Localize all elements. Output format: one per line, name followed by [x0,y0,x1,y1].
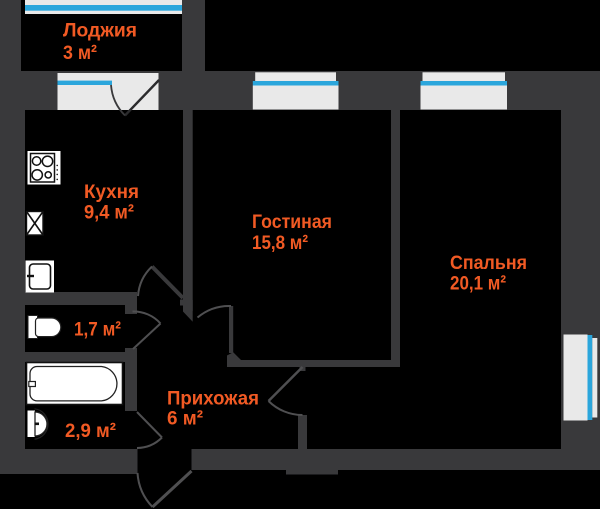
svg-text:9,4 м²: 9,4 м² [84,202,134,224]
svg-text:Лоджия: Лоджия [63,20,137,42]
svg-text:Прихожая: Прихожая [167,388,259,410]
svg-text:3 м²: 3 м² [63,42,97,64]
svg-text:Кухня: Кухня [84,181,139,203]
svg-text:15,8 м²: 15,8 м² [252,232,308,254]
svg-text:2,9 м²: 2,9 м² [65,420,116,442]
svg-text:6 м²: 6 м² [167,408,203,430]
svg-text:Гостиная: Гостиная [252,211,332,233]
svg-text:1,7 м²: 1,7 м² [74,319,121,341]
svg-text:20,1 м²: 20,1 м² [450,273,506,295]
svg-text:Спальня: Спальня [450,252,527,274]
